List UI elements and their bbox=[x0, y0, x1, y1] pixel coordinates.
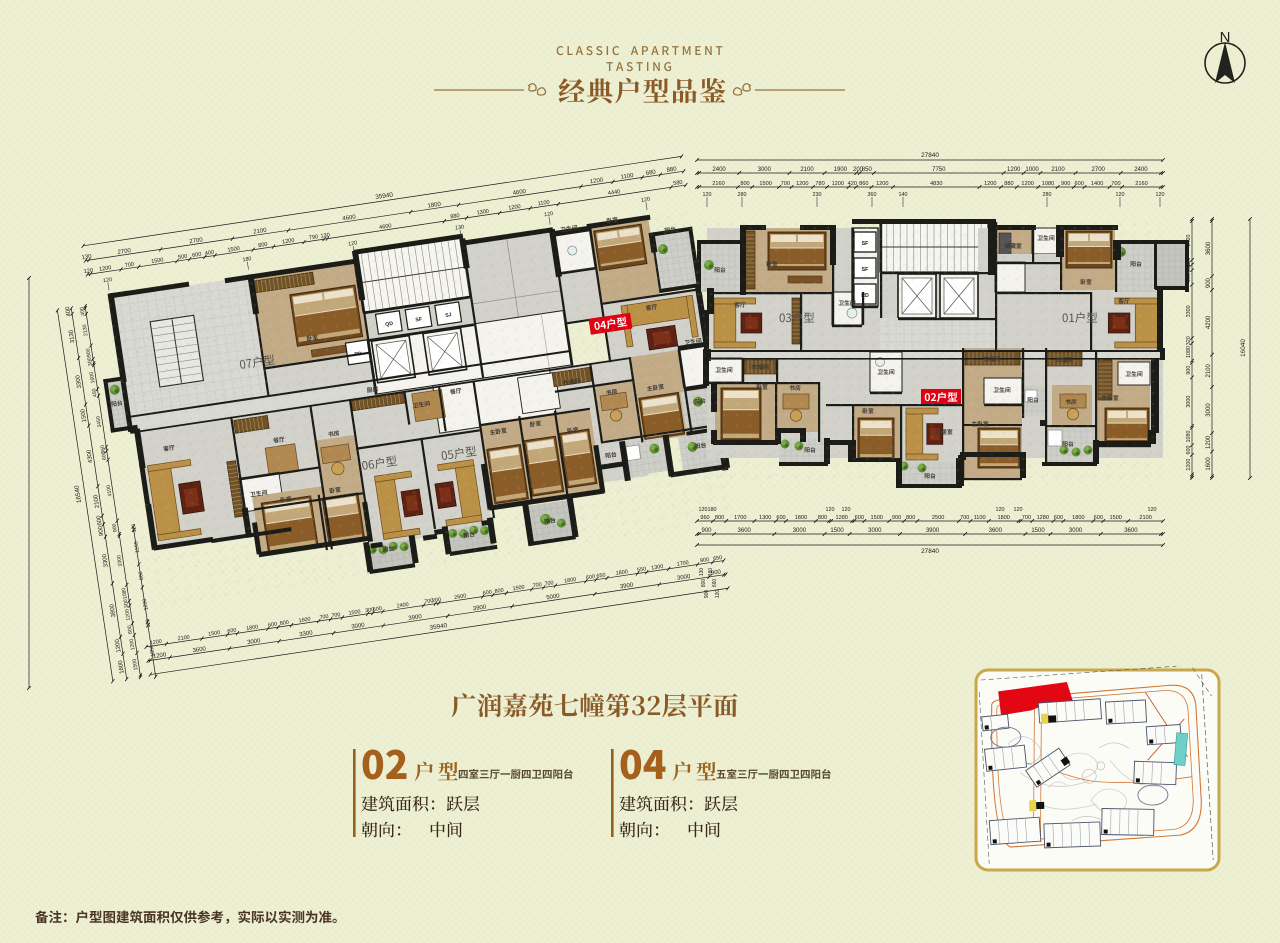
svg-text:860: 860 bbox=[859, 181, 868, 187]
svg-text:1200: 1200 bbox=[984, 181, 996, 187]
svg-text:800: 800 bbox=[138, 571, 145, 581]
svg-text:3900: 3900 bbox=[473, 604, 488, 612]
svg-text:3600: 3600 bbox=[989, 528, 1003, 534]
svg-text:1800: 1800 bbox=[997, 515, 1009, 521]
svg-text:1400: 1400 bbox=[1091, 181, 1103, 187]
svg-text:1200: 1200 bbox=[796, 181, 808, 187]
svg-text:120: 120 bbox=[826, 507, 835, 513]
svg-text:3000: 3000 bbox=[793, 528, 807, 534]
svg-text:1200: 1200 bbox=[508, 204, 521, 212]
svg-text:3000: 3000 bbox=[868, 528, 882, 534]
svg-text:2100: 2100 bbox=[253, 228, 268, 236]
svg-text:2700: 2700 bbox=[1092, 167, 1106, 173]
svg-text:16040: 16040 bbox=[1240, 339, 1247, 357]
svg-text:1500: 1500 bbox=[348, 609, 361, 617]
svg-text:120: 120 bbox=[996, 507, 1005, 513]
svg-text:130: 130 bbox=[455, 224, 465, 231]
svg-text:1500: 1500 bbox=[830, 528, 844, 534]
svg-text:2160: 2160 bbox=[1135, 181, 1147, 187]
svg-text:900: 900 bbox=[704, 590, 710, 599]
svg-text:1800: 1800 bbox=[149, 645, 157, 657]
svg-text:900: 900 bbox=[892, 515, 901, 521]
svg-text:600: 600 bbox=[1054, 515, 1063, 521]
svg-text:1200: 1200 bbox=[832, 181, 844, 187]
svg-text:1500: 1500 bbox=[512, 585, 525, 593]
svg-text:2400: 2400 bbox=[1134, 167, 1148, 173]
svg-text:120: 120 bbox=[1148, 507, 1157, 513]
svg-text:850: 850 bbox=[862, 167, 873, 173]
svg-text:700: 700 bbox=[781, 181, 790, 187]
svg-text:680: 680 bbox=[645, 169, 656, 177]
svg-text:1500: 1500 bbox=[870, 515, 882, 521]
svg-text:900: 900 bbox=[112, 523, 119, 533]
svg-text:1000: 1000 bbox=[1025, 167, 1039, 173]
svg-text:1500: 1500 bbox=[151, 257, 164, 265]
svg-text:2400: 2400 bbox=[396, 602, 409, 610]
svg-text:1900: 1900 bbox=[834, 167, 848, 173]
svg-text:2100: 2100 bbox=[1139, 515, 1151, 521]
svg-text:1100: 1100 bbox=[537, 200, 550, 208]
svg-text:1500: 1500 bbox=[227, 246, 240, 254]
svg-text:3300: 3300 bbox=[1186, 305, 1192, 317]
svg-text:800: 800 bbox=[906, 515, 915, 521]
svg-text:3300: 3300 bbox=[102, 553, 110, 568]
svg-text:1500: 1500 bbox=[1109, 515, 1121, 521]
svg-text:800: 800 bbox=[701, 579, 707, 588]
svg-text:2100: 2100 bbox=[1051, 167, 1065, 173]
svg-text:1800: 1800 bbox=[427, 202, 442, 210]
svg-text:1280: 1280 bbox=[1037, 515, 1049, 521]
svg-text:2500: 2500 bbox=[932, 515, 944, 521]
svg-text:1600: 1600 bbox=[1206, 457, 1212, 471]
svg-text:4600: 4600 bbox=[342, 214, 357, 222]
svg-text:2100: 2100 bbox=[1206, 363, 1212, 377]
svg-text:120: 120 bbox=[145, 618, 152, 628]
svg-text:130: 130 bbox=[699, 568, 705, 577]
svg-text:800: 800 bbox=[740, 181, 749, 187]
svg-text:1200: 1200 bbox=[115, 638, 123, 653]
svg-text:120: 120 bbox=[641, 197, 651, 204]
svg-text:3300: 3300 bbox=[75, 374, 83, 389]
svg-text:3600: 3600 bbox=[192, 646, 207, 654]
svg-text:880: 880 bbox=[1004, 181, 1013, 187]
svg-text:600: 600 bbox=[855, 515, 864, 521]
svg-text:1080: 1080 bbox=[1042, 181, 1054, 187]
svg-text:800: 800 bbox=[818, 515, 827, 521]
svg-text:1500: 1500 bbox=[759, 181, 771, 187]
svg-text:600: 600 bbox=[776, 515, 785, 521]
svg-text:780: 780 bbox=[815, 181, 824, 187]
svg-text:27840: 27840 bbox=[921, 152, 939, 159]
svg-text:700: 700 bbox=[960, 515, 969, 521]
svg-text:4600: 4600 bbox=[512, 189, 527, 197]
svg-text:120: 120 bbox=[842, 507, 851, 513]
svg-text:3600: 3600 bbox=[738, 528, 752, 534]
svg-text:2600: 2600 bbox=[454, 593, 467, 601]
svg-text:3900: 3900 bbox=[408, 614, 423, 622]
svg-text:5000: 5000 bbox=[546, 593, 561, 601]
svg-text:3000: 3000 bbox=[1206, 403, 1212, 417]
svg-text:660: 660 bbox=[712, 579, 718, 588]
svg-text:2400: 2400 bbox=[712, 167, 726, 173]
svg-text:3900: 3900 bbox=[926, 528, 940, 534]
svg-text:900: 900 bbox=[85, 348, 92, 358]
svg-text:N: N bbox=[1220, 29, 1231, 46]
svg-text:1200: 1200 bbox=[876, 181, 888, 187]
svg-text:800: 800 bbox=[127, 625, 134, 635]
svg-text:3130: 3130 bbox=[68, 329, 76, 344]
svg-text:600: 600 bbox=[1186, 446, 1192, 455]
svg-text:2160: 2160 bbox=[712, 181, 724, 187]
svg-text:900: 900 bbox=[1061, 181, 1070, 187]
svg-text:700: 700 bbox=[1111, 181, 1120, 187]
svg-text:3900: 3900 bbox=[620, 582, 635, 590]
svg-text:2700: 2700 bbox=[117, 248, 132, 256]
svg-text:3000: 3000 bbox=[1186, 396, 1192, 408]
svg-text:4440: 4440 bbox=[608, 189, 621, 197]
svg-text:2100: 2100 bbox=[93, 494, 101, 509]
svg-text:1280: 1280 bbox=[835, 515, 847, 521]
svg-text:600: 600 bbox=[101, 451, 108, 461]
svg-text:1800: 1800 bbox=[795, 515, 807, 521]
svg-text:1300: 1300 bbox=[651, 564, 664, 572]
svg-text:1800: 1800 bbox=[246, 624, 259, 632]
svg-text:2420: 2420 bbox=[1186, 235, 1192, 247]
svg-text:1800: 1800 bbox=[1072, 515, 1084, 521]
svg-text:1800: 1800 bbox=[118, 659, 126, 674]
svg-text:120: 120 bbox=[348, 240, 358, 247]
svg-text:4600: 4600 bbox=[379, 223, 392, 231]
svg-text:1700: 1700 bbox=[676, 560, 689, 568]
svg-text:1800: 1800 bbox=[564, 577, 577, 585]
svg-text:1080: 1080 bbox=[1186, 346, 1192, 358]
svg-text:1200: 1200 bbox=[1206, 435, 1212, 449]
svg-text:450: 450 bbox=[91, 388, 98, 398]
svg-text:1200: 1200 bbox=[282, 238, 295, 246]
svg-text:900: 900 bbox=[1206, 277, 1212, 288]
svg-text:1200: 1200 bbox=[133, 541, 141, 553]
svg-text:120: 120 bbox=[544, 211, 554, 218]
svg-text:120: 120 bbox=[1014, 507, 1023, 513]
svg-text:2700: 2700 bbox=[189, 237, 204, 245]
svg-text:1200: 1200 bbox=[1007, 167, 1021, 173]
svg-text:3000: 3000 bbox=[247, 638, 262, 646]
svg-text:3000: 3000 bbox=[1069, 528, 1083, 534]
svg-text:3800: 3800 bbox=[109, 603, 117, 618]
svg-text:1500: 1500 bbox=[80, 408, 88, 423]
svg-text:120: 120 bbox=[103, 277, 113, 284]
svg-text:880: 880 bbox=[666, 166, 677, 174]
svg-text:1100: 1100 bbox=[974, 515, 986, 521]
svg-text:1300: 1300 bbox=[476, 209, 489, 217]
svg-text:4200: 4200 bbox=[1206, 315, 1212, 329]
svg-text:1500: 1500 bbox=[208, 630, 221, 638]
svg-text:27840: 27840 bbox=[921, 548, 939, 555]
svg-text:7750: 7750 bbox=[932, 167, 946, 173]
svg-text:420: 420 bbox=[848, 181, 857, 187]
svg-text:1200: 1200 bbox=[1021, 181, 1033, 187]
svg-text:3000: 3000 bbox=[351, 622, 366, 630]
svg-text:3600: 3600 bbox=[1206, 241, 1212, 255]
svg-text:3000: 3000 bbox=[758, 167, 772, 173]
svg-text:900: 900 bbox=[1186, 366, 1192, 375]
svg-text:1100: 1100 bbox=[620, 173, 634, 181]
svg-text:2100: 2100 bbox=[177, 635, 190, 643]
svg-text:1200: 1200 bbox=[590, 177, 605, 185]
svg-text:900: 900 bbox=[1186, 273, 1192, 282]
svg-text:3600: 3600 bbox=[1124, 528, 1138, 534]
svg-text:600: 600 bbox=[1075, 181, 1084, 187]
svg-text:180: 180 bbox=[708, 568, 714, 577]
svg-text:180: 180 bbox=[242, 256, 252, 263]
svg-text:1200: 1200 bbox=[1186, 459, 1192, 471]
svg-text:4300: 4300 bbox=[86, 449, 94, 464]
svg-text:130: 130 bbox=[81, 254, 92, 262]
svg-text:1600: 1600 bbox=[298, 617, 311, 625]
svg-text:120: 120 bbox=[131, 523, 138, 533]
svg-text:1700: 1700 bbox=[734, 515, 746, 521]
svg-text:2100: 2100 bbox=[800, 167, 814, 173]
svg-text:1080: 1080 bbox=[1186, 431, 1192, 443]
svg-text:1800: 1800 bbox=[615, 569, 628, 577]
svg-text:4830: 4830 bbox=[930, 181, 942, 187]
svg-text:3300: 3300 bbox=[299, 630, 314, 638]
svg-text:900: 900 bbox=[701, 528, 712, 534]
svg-text:1500: 1500 bbox=[1031, 528, 1045, 534]
svg-text:120: 120 bbox=[715, 590, 721, 599]
svg-text:700: 700 bbox=[1022, 515, 1031, 521]
svg-text:1200: 1200 bbox=[142, 598, 150, 610]
svg-text:16540: 16540 bbox=[73, 484, 83, 503]
svg-text:3000: 3000 bbox=[677, 574, 692, 582]
svg-text:1300: 1300 bbox=[759, 515, 771, 521]
svg-text:600: 600 bbox=[1094, 515, 1103, 521]
svg-text:1200: 1200 bbox=[99, 265, 112, 273]
